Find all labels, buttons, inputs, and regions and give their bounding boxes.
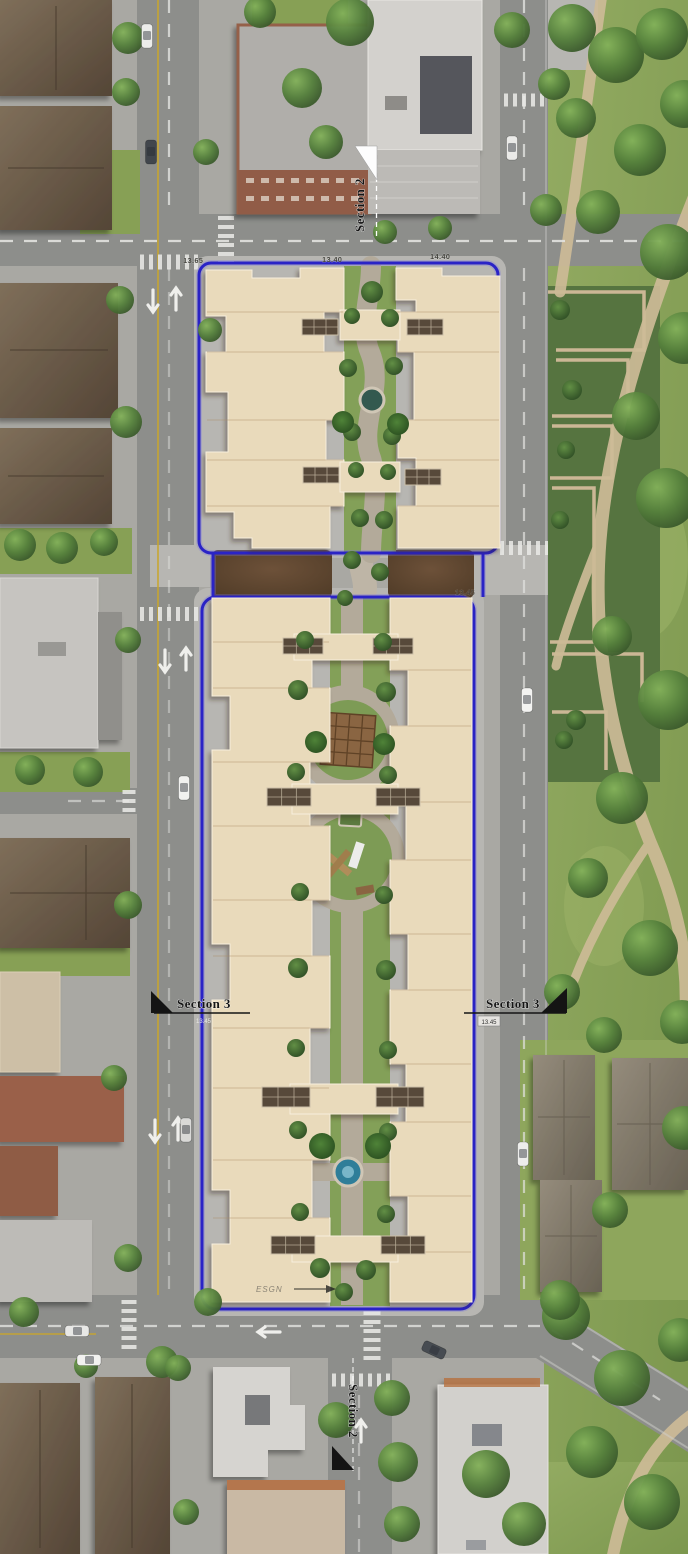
- window: [276, 196, 284, 201]
- window: [246, 196, 254, 201]
- shrub: [557, 441, 575, 459]
- car: [522, 688, 533, 712]
- roof-hatch: [271, 1236, 315, 1254]
- shrub: [379, 766, 397, 784]
- palm-tree: [309, 1133, 335, 1159]
- palm-tree: [365, 1133, 391, 1159]
- tree: [530, 194, 562, 226]
- shrub: [288, 680, 308, 700]
- tree: [428, 216, 452, 240]
- window: [246, 178, 254, 183]
- shrub: [550, 300, 570, 320]
- shrub: [339, 359, 357, 377]
- tree: [90, 528, 118, 556]
- tree: [115, 627, 141, 653]
- roof-hatch: [303, 467, 339, 483]
- entry-note-label: ESGN: [256, 1285, 283, 1294]
- window: [261, 178, 269, 183]
- building-dark-roof-section: [420, 56, 472, 134]
- car: [65, 1326, 89, 1337]
- tree: [46, 532, 78, 564]
- car: [77, 1355, 101, 1366]
- shrub: [555, 731, 573, 749]
- roof-hatch: [262, 1087, 310, 1107]
- palm-tree: [332, 411, 354, 433]
- shrub: [371, 563, 389, 581]
- shrub: [343, 551, 361, 569]
- window: [306, 196, 314, 201]
- tree: [374, 1380, 410, 1416]
- shrub: [375, 511, 393, 529]
- wing-lower-left: [212, 598, 330, 1302]
- window: [336, 178, 344, 183]
- shrub: [337, 590, 353, 606]
- elevation-top-left: 13.65: [183, 256, 203, 265]
- window: [306, 178, 314, 183]
- building-brick-facade: [238, 170, 370, 214]
- roof-hatch: [376, 788, 420, 806]
- section3-right-label: Section 3: [486, 996, 540, 1011]
- window: [291, 196, 299, 201]
- tree: [540, 1280, 580, 1320]
- tree: [112, 22, 144, 54]
- section3-left-elevation-tag: 13.45: [196, 1019, 212, 1025]
- shrub: [374, 633, 392, 651]
- section2-bottom-label: Section 2: [346, 1384, 361, 1438]
- tree: [502, 1502, 546, 1546]
- tree: [198, 318, 222, 342]
- window: [291, 178, 299, 183]
- tree: [636, 8, 688, 60]
- shrub: [380, 464, 396, 480]
- tree: [193, 139, 219, 165]
- tree: [576, 190, 620, 234]
- car: [146, 140, 157, 164]
- window: [276, 178, 284, 183]
- shrub: [288, 958, 308, 978]
- shrub: [344, 308, 360, 324]
- tree: [494, 12, 530, 48]
- tree: [9, 1297, 39, 1327]
- car: [142, 24, 153, 48]
- section3-left-label: Section 3: [177, 996, 231, 1011]
- shrub: [551, 511, 569, 529]
- building-beige-flat: [0, 972, 60, 1072]
- roof-hatch: [381, 1236, 425, 1254]
- shrub: [381, 309, 399, 327]
- building-brick-flat: [0, 1146, 58, 1216]
- elevation-top-right: 14.40: [430, 252, 450, 261]
- aerial-site-plan: Section 2 Section 2 Section 3 13.45 Sect…: [0, 0, 688, 1554]
- building-gray-flat: [0, 578, 98, 748]
- palm-tree: [373, 733, 395, 755]
- tree: [592, 616, 632, 656]
- shrub: [356, 1260, 376, 1280]
- shrub: [376, 960, 396, 980]
- shrub: [348, 462, 364, 478]
- roof-hatch: [267, 788, 311, 806]
- tree: [15, 755, 45, 785]
- window: [321, 196, 329, 201]
- shrub: [377, 1205, 395, 1223]
- tree: [566, 1426, 618, 1478]
- building-terracotta: [227, 1480, 345, 1554]
- tree: [112, 78, 140, 106]
- tree: [568, 858, 608, 898]
- shrub: [310, 1258, 330, 1278]
- shrub: [361, 281, 383, 303]
- tree: [592, 1192, 628, 1228]
- window: [336, 196, 344, 201]
- roof-hatch: [302, 319, 338, 335]
- shrub: [287, 763, 305, 781]
- tree: [4, 529, 36, 561]
- building-gray-flat: [98, 612, 122, 740]
- tree: [614, 124, 666, 176]
- tree: [586, 1017, 622, 1053]
- tree: [114, 1244, 142, 1272]
- shrub: [375, 886, 393, 904]
- elevation-mid-right: 13.45: [455, 588, 475, 597]
- roof-hatch: [407, 319, 443, 335]
- shrub: [351, 509, 369, 527]
- shrub: [566, 710, 586, 730]
- car: [181, 1118, 192, 1142]
- tree: [326, 0, 374, 46]
- shrub: [335, 1283, 353, 1301]
- tree: [194, 1288, 222, 1316]
- tree: [624, 1474, 680, 1530]
- tree: [588, 27, 644, 83]
- shrub: [376, 682, 396, 702]
- elevation-top-center: 13.40: [322, 255, 342, 264]
- tree: [622, 920, 678, 976]
- car: [179, 776, 190, 800]
- tree: [73, 757, 103, 787]
- tree: [556, 98, 596, 138]
- section3-right-elevation-tag: 13.45: [481, 1020, 497, 1026]
- roof-hatch: [405, 469, 441, 485]
- car: [507, 136, 518, 160]
- shrub: [296, 631, 314, 649]
- shrub: [287, 1039, 305, 1057]
- fountain-lower-center: [342, 1166, 354, 1178]
- tree: [378, 1442, 418, 1482]
- shrub: [289, 1121, 307, 1139]
- fountain-upper: [360, 388, 384, 412]
- palm-tree: [387, 413, 409, 435]
- tree: [384, 1506, 420, 1542]
- tree: [110, 406, 142, 438]
- tree: [106, 286, 134, 314]
- scene: Section 2 Section 2 Section 3 13.45 Sect…: [0, 0, 688, 1554]
- tree: [114, 891, 142, 919]
- tree: [282, 68, 322, 108]
- palm-tree: [305, 731, 327, 753]
- car: [518, 1142, 529, 1166]
- tree: [612, 392, 660, 440]
- tree: [309, 125, 343, 159]
- tree: [548, 4, 596, 52]
- tree: [594, 1350, 650, 1406]
- tree: [173, 1499, 199, 1525]
- shrub: [562, 380, 582, 400]
- tree: [101, 1065, 127, 1091]
- shrub: [379, 1041, 397, 1059]
- window: [321, 178, 329, 183]
- tree: [462, 1450, 510, 1498]
- building-gray-flat: [0, 1220, 92, 1302]
- tree: [165, 1355, 191, 1381]
- shrub: [385, 357, 403, 375]
- tree: [538, 68, 570, 100]
- window: [261, 196, 269, 201]
- shrub: [291, 883, 309, 901]
- section2-top-label: Section 2: [352, 178, 367, 232]
- tree: [596, 772, 648, 824]
- shrub: [291, 1203, 309, 1221]
- roof-hatch: [376, 1087, 424, 1107]
